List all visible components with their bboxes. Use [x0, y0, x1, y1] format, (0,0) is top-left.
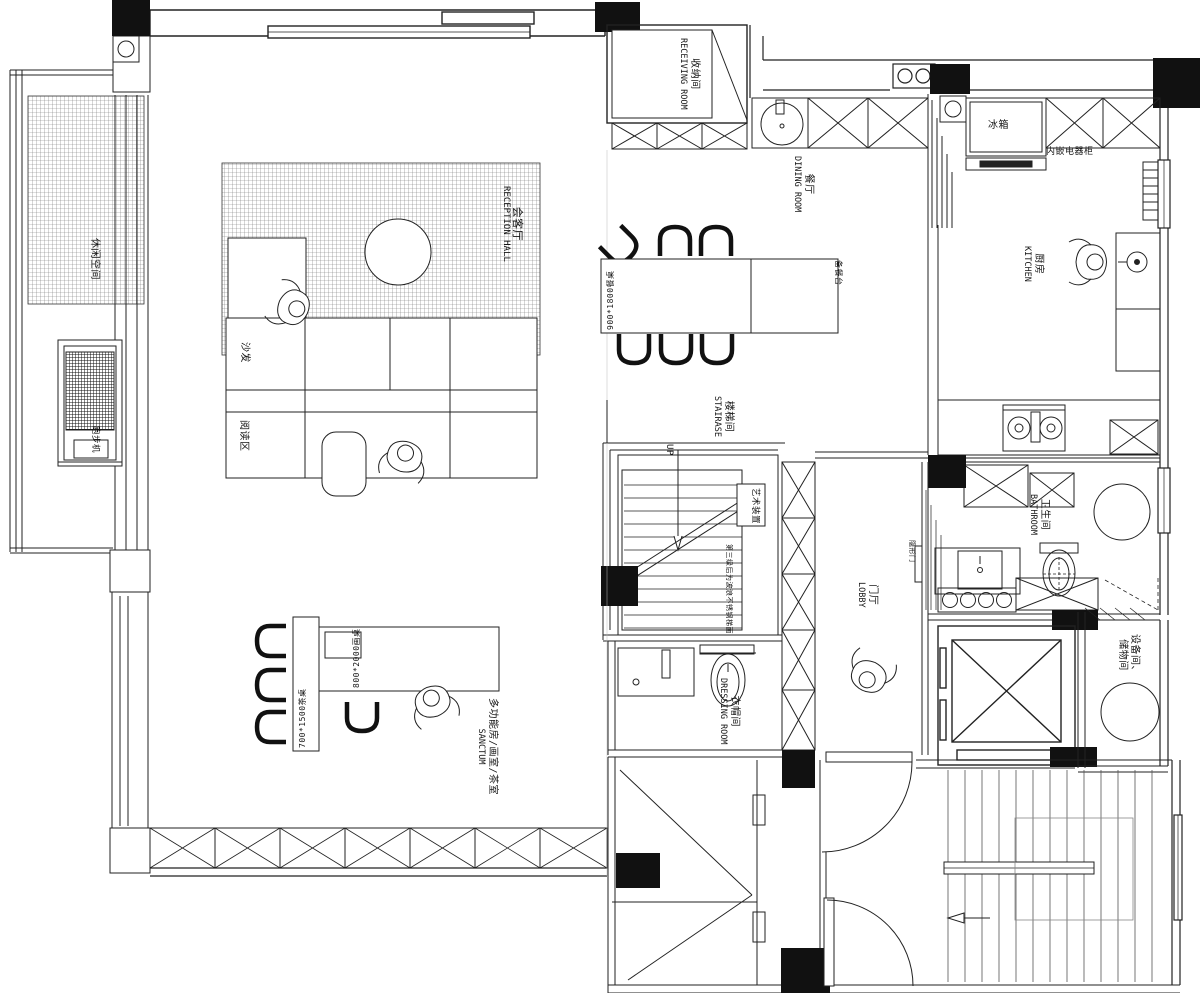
annotation-hidden-door: 隐形门	[908, 540, 916, 563]
column	[1050, 747, 1097, 767]
dining-cabinets	[752, 98, 928, 148]
furniture-label-fridge: 冰箱	[988, 120, 1009, 132]
north-wall	[150, 10, 605, 38]
kitchen-north-cabinets	[940, 96, 1160, 170]
sanctum-furniture	[257, 617, 499, 751]
column	[930, 64, 970, 94]
room-label-dressing-room: 衣帽间 DRESSING ROOM	[718, 678, 740, 745]
column	[112, 0, 150, 36]
furniture-label-dining-table: 900*1800餐桌	[606, 270, 616, 330]
furniture-label-serving-counter: 备餐台	[833, 260, 843, 286]
public-staircase	[916, 760, 1172, 982]
room-label-lobby: 门厅 LOBBY	[856, 582, 878, 608]
kitchen-west-wall	[928, 94, 952, 455]
column	[782, 750, 815, 788]
duct-shaft	[782, 462, 815, 750]
kitchen-south-counter	[938, 400, 1160, 455]
interior-staircase	[603, 443, 785, 641]
column	[781, 948, 830, 993]
room-label-bathroom: 卫生间 BATHROOM	[1028, 494, 1050, 535]
room-label-kitchen: 厨房 KITCHEN	[1022, 246, 1044, 282]
floor-plan-canvas: 会客厅 RECEPTION HALL 收纳间 RECEIVING ROOM 餐厅…	[0, 0, 1200, 993]
lobby-walls	[815, 452, 941, 755]
south-rooms	[608, 757, 1180, 993]
annotation-stair-note: 第三级后为波浪不锈钢梯面	[725, 544, 733, 634]
dressing-room	[608, 641, 782, 757]
room-label-leisure-space: 休闲空间	[88, 238, 100, 280]
furniture-label-treadmill: 跑步机	[90, 426, 100, 453]
room-label-equipment-storage: 设备间、 储物间	[1116, 634, 1140, 676]
room-label-staircase: 楼梯间 STAIRASE	[712, 396, 734, 437]
furniture-label-appliance-cabinet: 内嵌电器柜	[1046, 147, 1094, 158]
furniture-label-art-installation: 艺术装置	[750, 488, 760, 524]
furniture-label-painting-table: 800*2000画桌	[352, 628, 362, 688]
east-wall	[1158, 108, 1182, 985]
room-label-receiving-room: 收纳间 RECEIVING ROOM	[678, 38, 700, 110]
balcony-planter	[28, 96, 144, 304]
column	[595, 2, 640, 32]
elevator	[938, 626, 1075, 765]
column	[616, 853, 660, 888]
furniture-label-tea-table: 700*1500茶桌	[298, 688, 308, 748]
furniture-label-sofa: 沙发	[238, 342, 250, 363]
room-label-dining-room: 餐厅 DINING ROOM	[792, 156, 814, 212]
kitchen-east-counter	[1116, 162, 1163, 371]
person-figure	[1069, 239, 1107, 285]
floor-plan-linework	[0, 0, 1200, 993]
room-label-sanctum: 多功能房/画室/茶室 SANCTUM	[476, 698, 498, 795]
annotation-up: UP	[663, 444, 674, 456]
person-figure	[842, 647, 899, 700]
furniture-label-reading-area: 阅读区	[237, 420, 249, 452]
column	[601, 566, 638, 606]
room-label-reception-hall: 会客厅 RECEPTION HALL	[500, 186, 524, 262]
door-arcs	[822, 752, 913, 986]
column	[928, 455, 966, 488]
